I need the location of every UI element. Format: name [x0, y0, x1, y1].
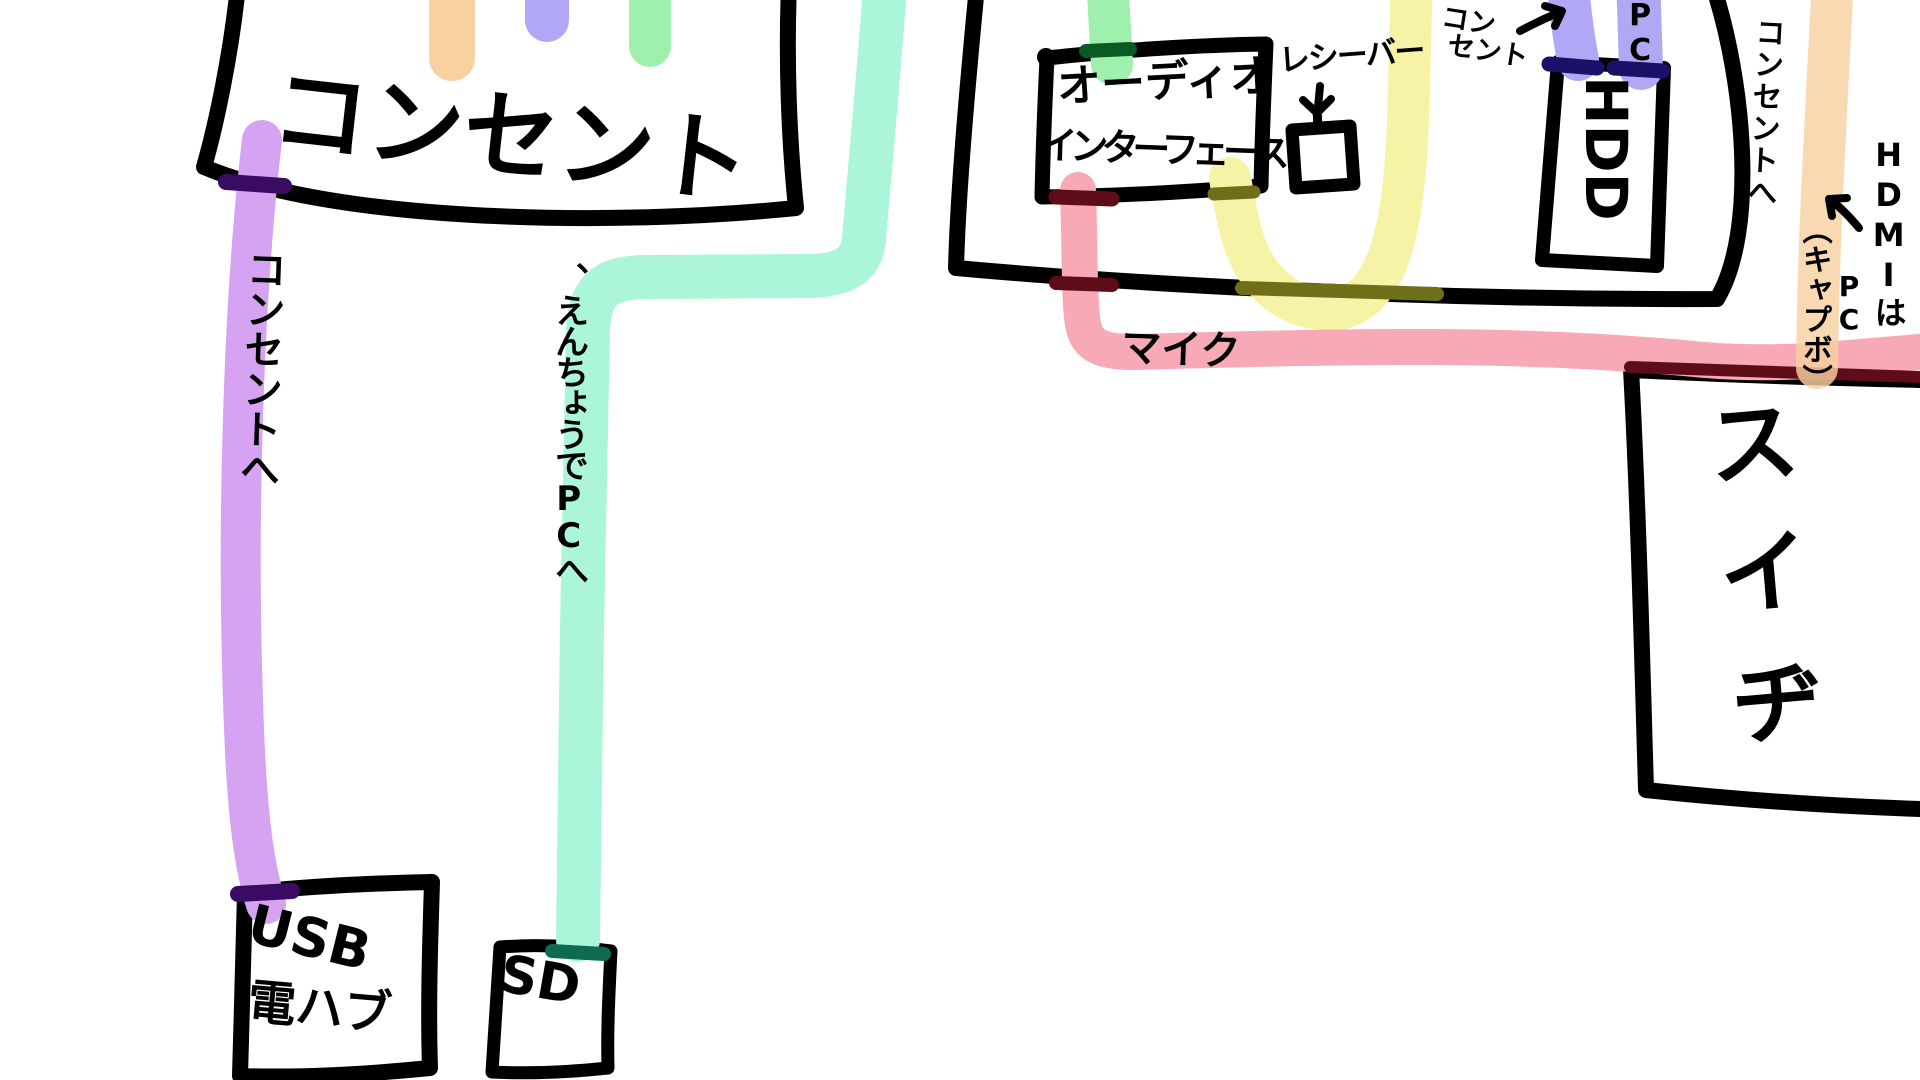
hdd-label: HDD	[1576, 76, 1635, 221]
hdmi-note: HDMIは	[1872, 136, 1905, 330]
overlap-purple-outlet	[226, 182, 284, 186]
sd-box-label: SD	[496, 948, 585, 1014]
overlap-peri-hdd-2	[1614, 68, 1663, 71]
overlap-pink-desk	[1056, 283, 1112, 285]
periwinkle-hdd-cable-1	[1567, 0, 1578, 60]
teal-cable-label: 、えんちょうでPCへ	[551, 262, 586, 584]
overlap-pink-audio	[1056, 197, 1112, 199]
overlap-peri-hdd-1	[1549, 64, 1597, 68]
drawing-canvas: コンセント コンセントへ 、えんちょうでPCへ オーディオ インターフェース レ…	[0, 0, 1920, 1080]
hdmi-pc-label: PC	[1834, 270, 1863, 336]
purple-cable-label: コンセントへ	[235, 248, 284, 489]
capture-board-note: （キャプボ）	[1798, 214, 1829, 394]
receiver-icon	[1292, 126, 1354, 188]
overlap-yellow-audio	[1214, 192, 1254, 194]
audio-interface-label-line1: オーディオ	[1056, 55, 1275, 111]
overlap-green-audio	[1086, 49, 1130, 51]
audio-interface-label-line2: インターフェース	[1039, 126, 1284, 173]
audio-box-corner-blob	[1037, 48, 1055, 66]
usb-hub-label-line2: 電ハブ	[246, 978, 394, 1039]
mic-label: マイク	[1121, 328, 1242, 373]
pc-top-label: PC	[1624, 0, 1655, 68]
overlap-yellow-desk	[1242, 288, 1437, 294]
